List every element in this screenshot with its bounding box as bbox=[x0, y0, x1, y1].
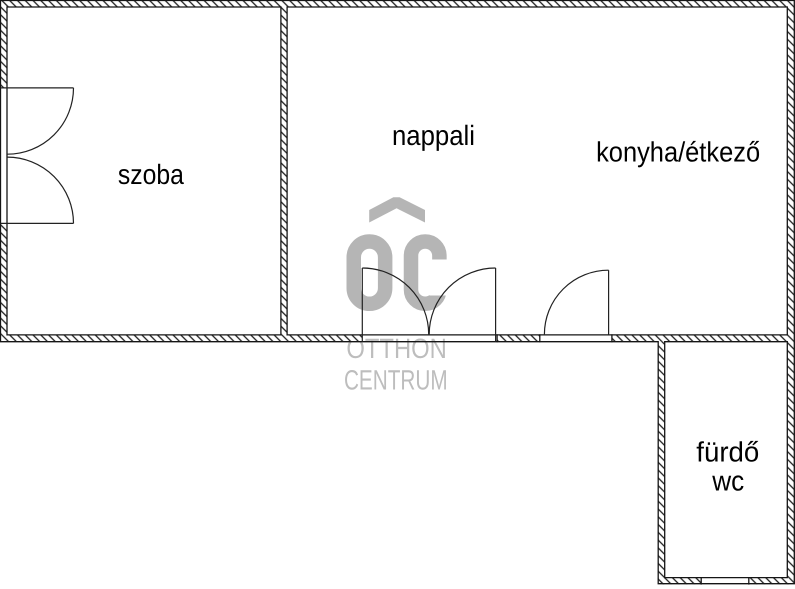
svg-text:szoba: szoba bbox=[118, 159, 184, 190]
svg-text:fürdő: fürdő bbox=[696, 437, 759, 468]
svg-text:CENTRUM: CENTRUM bbox=[344, 364, 448, 395]
svg-text:konyha/étkező: konyha/étkező bbox=[596, 137, 760, 168]
svg-text:nappali: nappali bbox=[392, 120, 475, 151]
svg-text:wc: wc bbox=[711, 465, 744, 496]
